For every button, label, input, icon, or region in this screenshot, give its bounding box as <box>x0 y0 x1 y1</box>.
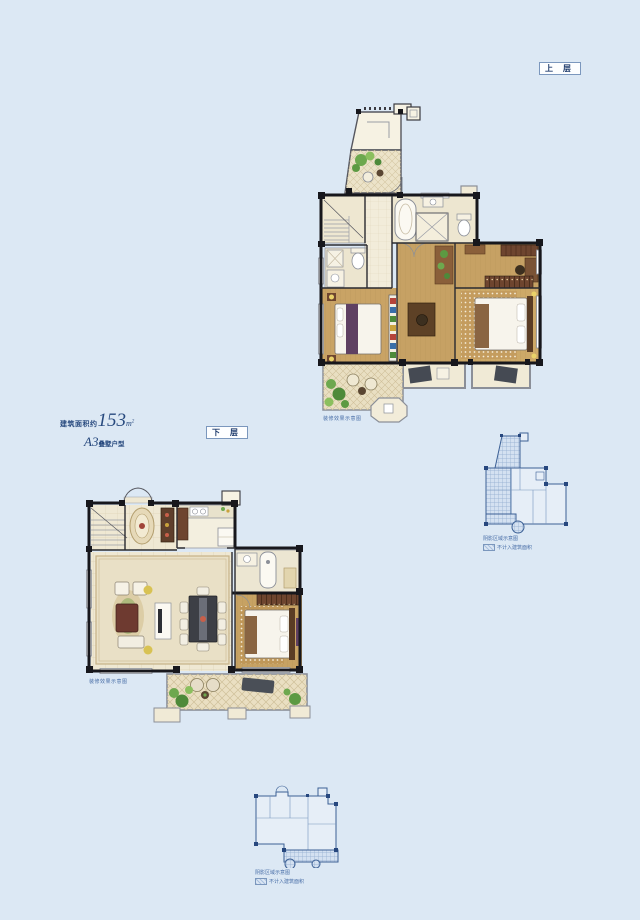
footing <box>290 706 310 718</box>
armchair-icon <box>115 582 129 595</box>
type-suffix: 叠墅户型 <box>98 441 124 448</box>
upper-rooms <box>321 193 540 366</box>
bench-icon <box>118 636 144 648</box>
lower-floor-plan <box>82 478 317 728</box>
tv-cabinet-icon <box>155 603 171 639</box>
lounge-chair-icon <box>408 366 432 384</box>
lounge-chair-icon <box>494 366 518 384</box>
cabinet-icon <box>501 245 538 256</box>
wardrobe-icon <box>257 594 300 605</box>
hatch-swatch-icon <box>255 878 267 885</box>
hatch-swatch-icon <box>483 544 495 551</box>
oven-tower-icon <box>177 508 188 540</box>
footing <box>228 708 246 719</box>
lower-terrace <box>154 674 310 722</box>
upper-floor-label: 上 层 <box>539 62 581 75</box>
sofa-icon <box>116 604 138 632</box>
lower-plan-caption: 装修效果示意图 <box>89 679 128 685</box>
basin-icon <box>244 556 251 563</box>
type-code: A3 <box>84 434 98 449</box>
terrace-table-icon <box>377 170 384 177</box>
keyplan-lower-caption: 阴影区域示意图 不计入建筑面积 <box>255 869 304 887</box>
toilet-icon <box>352 253 364 269</box>
tv-icon <box>158 609 162 633</box>
toilet-icon <box>458 220 470 236</box>
keyplan-upper <box>478 430 574 534</box>
wardrobe-icon <box>485 276 533 288</box>
keyplan-upper-caption: 阴影区域示意图 不计入建筑面积 <box>483 535 532 553</box>
upper-plan-caption: 装修效果示意图 <box>323 416 362 422</box>
area-prefix: 建筑面积约 <box>60 421 98 428</box>
chair-icon <box>417 315 428 326</box>
upper-floor-plan <box>315 98 545 423</box>
upper-top-terrace <box>345 104 420 193</box>
terrace-chair-icon <box>363 172 373 182</box>
area-number: 153 <box>98 410 127 431</box>
floorplan-brochure-page: { "labels": { "upper_floor": "上 层", "low… <box>0 0 640 920</box>
footing <box>154 708 180 722</box>
area-info: 建筑面积约153m2 A3叠墅户型 <box>60 410 210 451</box>
lower-floor-label: 下 层 <box>206 426 248 439</box>
terrace-chair-icon <box>207 679 220 692</box>
shower-icon <box>260 552 276 588</box>
lower-rooms <box>91 505 302 671</box>
keyplan-lower <box>250 784 342 868</box>
